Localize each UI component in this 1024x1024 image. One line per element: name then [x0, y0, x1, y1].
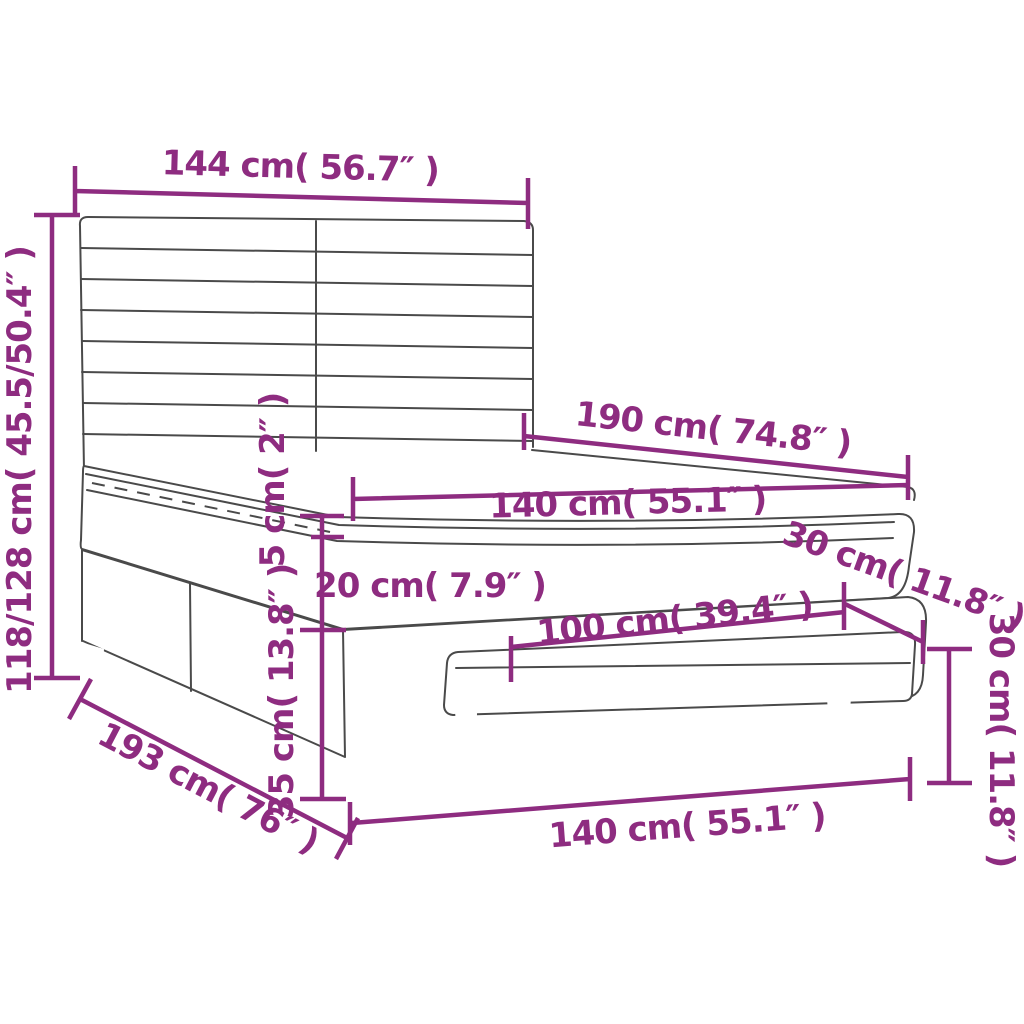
dim-bed-height-label: 118/128 cm( 45.5/50.4″ ): [0, 246, 40, 694]
product-dimension-image: 144 cm( 56.7″ ) 118/128 cm( 45.5/50.4″ )…: [0, 0, 1024, 1024]
headboard: [80, 217, 533, 470]
dim-bed-height: 118/128 cm( 45.5/50.4″ ): [0, 215, 80, 694]
dim-bench-height-label: 30 cm( 11.8″ ): [981, 613, 1021, 868]
base-center-seam: [190, 584, 191, 691]
dim-headboard-width-label: 144 cm( 56.7″ ): [161, 143, 439, 191]
dim-bed-length-label: 190 cm( 74.8″ ): [573, 394, 853, 464]
dim-headboard-width: 144 cm( 56.7″ ): [75, 143, 528, 229]
bed-dimension-diagram: 144 cm( 56.7″ ) 118/128 cm( 45.5/50.4″ )…: [0, 0, 1024, 1024]
dim-mattress-height-label: 20 cm( 7.9″ ): [314, 566, 546, 606]
dim-mattress-width-label: 140 cm( 55.1″ ): [489, 479, 767, 526]
dim-base-height-label: 35 cm( 13.8″ ): [262, 564, 302, 819]
bench: [444, 632, 915, 830]
dim-topper-height-label: 5 cm( 2″ ): [253, 393, 293, 568]
dim-bench-height: 30 cm( 11.8″ ): [927, 613, 1021, 868]
